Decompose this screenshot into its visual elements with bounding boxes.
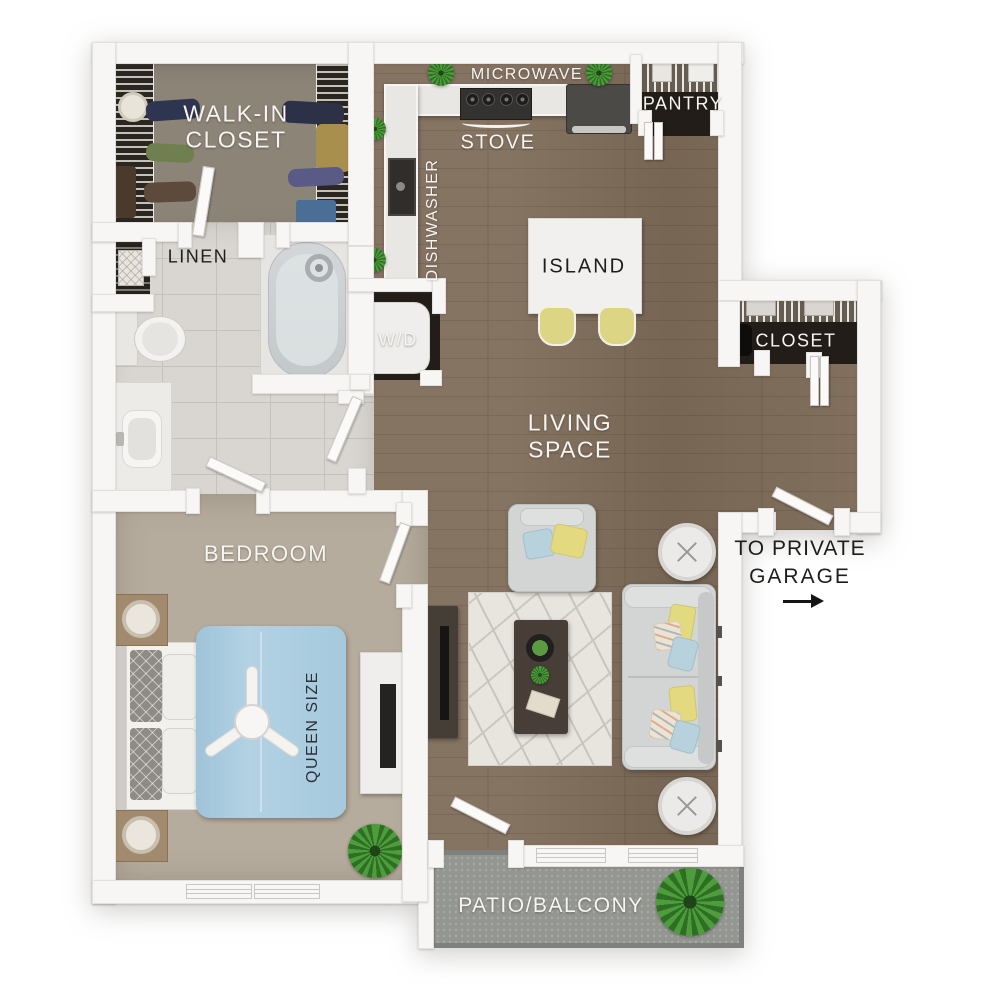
dishwasher-knob: [396, 182, 405, 191]
faucet-icon: [116, 432, 124, 446]
door-jamb: [428, 840, 444, 868]
label-walkin-line2: CLOSET: [185, 127, 286, 154]
garment-icon: [288, 167, 345, 188]
armchair-back: [520, 508, 584, 526]
wall-laundry-right: [432, 278, 446, 314]
bed-pillow: [162, 728, 198, 794]
burner-icon: [500, 93, 513, 106]
hat-icon: [118, 92, 148, 122]
label-walkin-line1: WALK-IN: [183, 101, 289, 128]
bed-pillow: [162, 654, 198, 720]
sofa-seam: [628, 676, 698, 678]
label-pantry: PANTRY: [643, 94, 723, 115]
wall-kitchen-right: [718, 42, 742, 294]
bed-pillow: [130, 728, 162, 800]
sink-basin: [128, 418, 156, 460]
bench-icon: [114, 166, 136, 218]
door-jamb: [508, 840, 524, 868]
wall-mark: [716, 740, 722, 752]
label-dishwasher: DISHWASHER: [424, 159, 442, 282]
wall-linen-post: [142, 238, 156, 276]
label-garage-line1: TO PRIVATE: [734, 537, 865, 561]
bed-pillow: [130, 650, 162, 722]
plant-icon: [348, 824, 402, 878]
ceiling-fan-hub: [234, 704, 270, 740]
label-queen-size: QUEEN SIZE: [304, 671, 322, 783]
bar-stool: [538, 306, 576, 346]
window-living: [628, 848, 698, 863]
right-arrow-head-icon: [811, 594, 824, 608]
label-patio: PATIO/BALCONY: [458, 894, 644, 918]
side-table: [658, 777, 716, 835]
label-living-line2: SPACE: [528, 437, 612, 464]
wall-exterior-left: [92, 42, 116, 904]
door-jamb: [396, 502, 412, 526]
wall-bath-bedroom: [92, 490, 190, 512]
right-arrow-icon: [783, 600, 811, 603]
door-jamb: [834, 508, 850, 536]
garment-icon: [144, 181, 197, 203]
patio-plant-icon: [656, 868, 724, 936]
door-jamb: [758, 508, 774, 536]
label-closet: CLOSET: [755, 331, 836, 352]
label-island: ISLAND: [542, 256, 626, 279]
bowl-icon: [526, 634, 554, 662]
wall-bedroom-right: [402, 584, 428, 902]
door-pantry: [644, 122, 653, 160]
door-jamb: [178, 222, 192, 248]
bed-duvet: [196, 626, 346, 818]
wall-bath-bedroom: [262, 490, 408, 512]
label-living-line1: LIVING: [528, 410, 612, 437]
wall-laundry-post: [350, 374, 370, 390]
pantry-box: [652, 62, 672, 82]
linen-basket-icon: [118, 250, 144, 286]
label-microwave: MICROWAVE: [471, 66, 583, 84]
burner-icon: [466, 93, 479, 106]
oven-handle: [462, 118, 530, 128]
door-jamb: [754, 350, 770, 376]
door-pantry: [654, 122, 663, 160]
lamp-icon: [122, 600, 160, 638]
wall-walkin-bottom: [92, 222, 190, 242]
wall-hall-post: [348, 468, 366, 494]
label-bedroom: BEDROOM: [204, 541, 328, 567]
door-closet: [820, 356, 829, 406]
wall-mark: [716, 676, 722, 686]
label-garage-line2: GARAGE: [749, 565, 851, 589]
label-stove: STOVE: [461, 132, 536, 155]
side-table: [658, 523, 716, 581]
door-jamb: [276, 222, 290, 248]
wall-laundry-post: [420, 370, 442, 386]
burner-icon: [482, 93, 495, 106]
door-jamb: [256, 488, 270, 514]
window-bedroom: [254, 884, 320, 899]
window-bedroom: [186, 884, 252, 899]
wall-tub-post: [238, 222, 264, 258]
garment-icon: [281, 100, 344, 125]
door-jamb: [186, 488, 200, 514]
burner-icon: [516, 93, 529, 106]
wall-mark: [716, 626, 722, 638]
lamp-icon: [122, 816, 160, 854]
door-closet: [810, 356, 819, 406]
wall-exterior-top: [92, 42, 744, 64]
tub-drain-dot: [315, 264, 323, 272]
wall-linen-bottom: [92, 294, 154, 312]
bar-stool: [598, 306, 636, 346]
wall-bump-right: [857, 280, 881, 534]
bag-icon: [316, 124, 350, 172]
label-linen: LINEN: [168, 247, 229, 268]
label-washer-dryer: W/D: [378, 330, 418, 351]
toilet-seat: [142, 322, 178, 356]
floor-plan: WALK-IN CLOSET LINEN MICROWAVE STOVE PAN…: [0, 0, 1000, 1000]
window-living: [536, 848, 606, 863]
tv-icon: [440, 626, 449, 720]
refrigerator-edge: [572, 126, 626, 133]
wall-closet-left: [718, 301, 740, 367]
wall-divider: [348, 42, 374, 246]
tv-icon: [380, 684, 396, 768]
plant-icon: [531, 666, 549, 684]
sofa-backrest: [698, 592, 714, 764]
door-jamb: [396, 584, 412, 608]
